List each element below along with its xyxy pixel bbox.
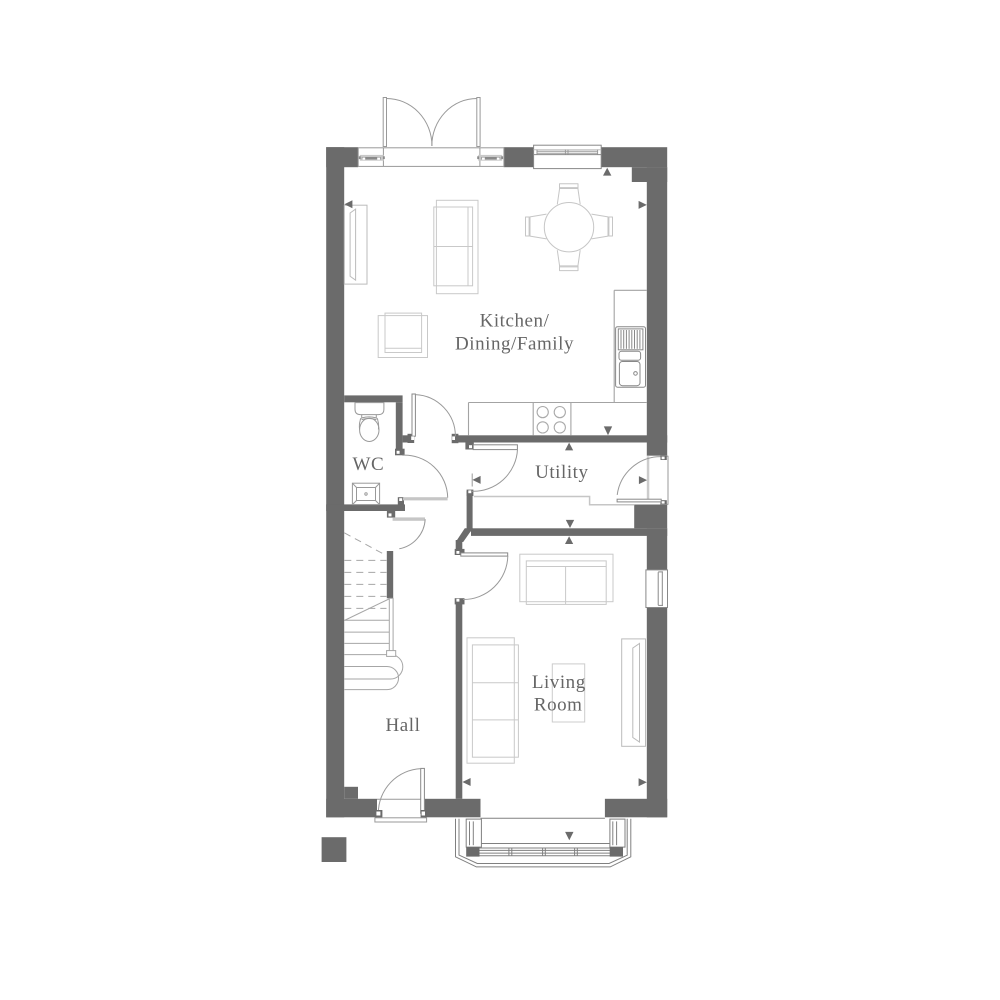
svg-text:Living: Living xyxy=(532,672,586,693)
svg-text:Kitchen/: Kitchen/ xyxy=(480,311,550,332)
svg-text:Utility: Utility xyxy=(535,462,588,483)
svg-text:WC: WC xyxy=(353,454,385,475)
svg-text:Room: Room xyxy=(534,694,583,715)
svg-text:Hall: Hall xyxy=(386,715,421,736)
svg-text:Dining/Family: Dining/Family xyxy=(455,333,574,354)
